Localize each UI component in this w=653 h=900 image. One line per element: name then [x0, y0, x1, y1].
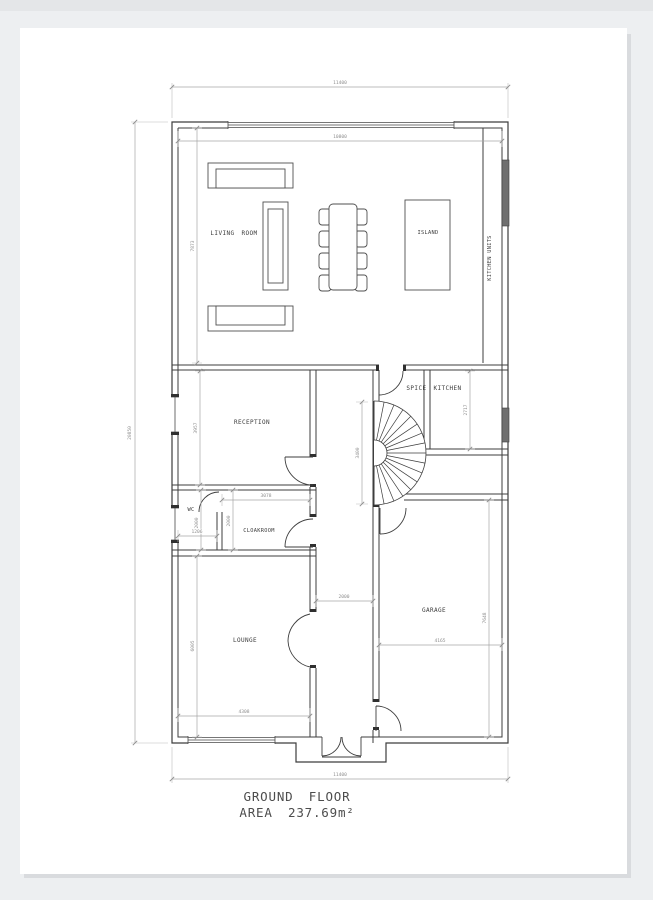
floor-plan-canvas: 11400 10800 20850 7873 3957 2717 3400 2 — [0, 0, 653, 900]
dim-text-wc-width: 1206 — [191, 529, 202, 535]
label-lounge: LOUNGE — [233, 637, 257, 644]
left-wall-window-reception — [171, 394, 179, 435]
label-reception: RECEPTION — [234, 419, 270, 426]
sofa-side — [263, 202, 288, 290]
drawing-area: AREA 237.69m² — [239, 805, 354, 820]
dim-text-garage-width: 4165 — [434, 638, 445, 644]
label-living-room: LIVING ROOM — [210, 230, 257, 237]
paper-sheet — [20, 28, 627, 874]
label-island: ISLAND — [418, 230, 439, 236]
top-wall-window — [228, 121, 454, 129]
dim-text-spice-kitchen-height: 2717 — [463, 404, 469, 415]
label-cloakroom: CLOAKROOM — [243, 528, 274, 534]
dim-text-reception-height: 3957 — [193, 422, 199, 433]
right-wall-window-spice-kitchen — [502, 408, 509, 442]
right-wall-window-kitchen — [502, 160, 509, 226]
dim-text-living-height: 7873 — [190, 240, 196, 251]
dim-text-living-width: 10800 — [333, 134, 347, 140]
kitchen-island — [405, 200, 450, 290]
dim-text-hall-width: 2000 — [338, 594, 349, 600]
drawing-title: GROUND FLOOR — [244, 789, 351, 804]
label-spice-kitchen: SPICE KITCHEN — [406, 385, 461, 392]
dim-text-stair-height: 3400 — [355, 447, 361, 458]
dim-text-overall-width-bottom: 11400 — [333, 772, 347, 778]
label-wc: WC — [188, 507, 195, 513]
dim-text-cloakroom-height: 2000 — [226, 515, 232, 526]
label-kitchen-units: KITCHEN UNITS — [487, 235, 493, 280]
dim-text-wc-height: 2000 — [194, 517, 200, 528]
sofa-bottom — [208, 306, 293, 331]
sofa-top — [208, 163, 293, 188]
dim-text-overall-height: 20850 — [127, 426, 133, 440]
dim-text-lounge-width: 4308 — [238, 709, 249, 715]
dim-text-garage-height: 7648 — [482, 612, 488, 623]
top-strip — [0, 0, 653, 11]
dim-text-overall-width-top: 11400 — [333, 80, 347, 86]
dim-text-cloakroom-width: 3078 — [260, 493, 271, 499]
title-block: GROUND FLOOR AREA 237.69m² — [239, 789, 354, 820]
label-garage: GARAGE — [422, 607, 446, 614]
dining-table — [329, 204, 357, 290]
dim-text-lounge-height: 6005 — [190, 640, 196, 651]
